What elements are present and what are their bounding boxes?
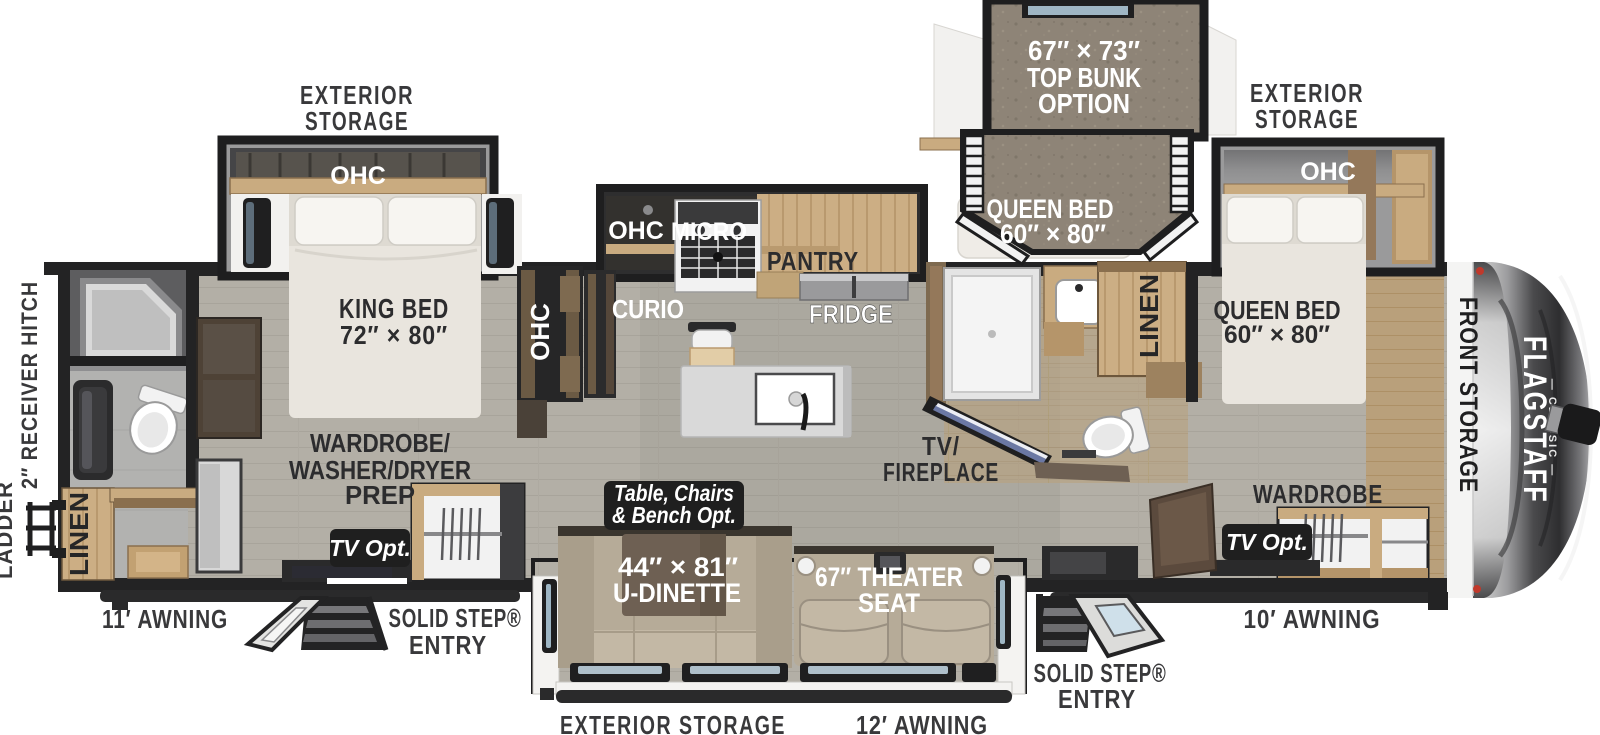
svg-text:OHC: OHC [1300,158,1356,186]
svg-text:WARDROBE/: WARDROBE/ [310,428,450,458]
svg-text:STORAGE: STORAGE [1255,104,1359,134]
svg-text:LINEN: LINEN [1134,274,1164,358]
svg-text:CURIO: CURIO [612,294,684,324]
svg-text:OHC: OHC [608,217,664,245]
svg-text:10′ AWNING: 10′ AWNING [1244,604,1381,634]
svg-text:60″ × 80″: 60″ × 80″ [1224,321,1330,349]
svg-text:FRIDGE: FRIDGE [809,299,893,329]
svg-text:OHC: OHC [525,303,555,361]
svg-text:MICRO: MICRO [671,218,747,246]
svg-text:OHC: OHC [330,162,386,190]
svg-text:2″ RECEIVER HITCH: 2″ RECEIVER HITCH [17,281,42,489]
svg-text:TV Opt.: TV Opt. [1226,529,1308,555]
svg-text:TV Opt.: TV Opt. [329,535,411,561]
svg-text:& Bench Opt.: & Bench Opt. [612,502,736,528]
svg-text:LADDER: LADDER [0,481,17,579]
svg-text:STORAGE: STORAGE [305,106,409,136]
svg-text:11′ AWNING: 11′ AWNING [102,604,228,634]
svg-text:LINEN: LINEN [64,492,94,576]
svg-text:ENTRY: ENTRY [1058,684,1136,714]
svg-text:U-DINETTE: U-DINETTE [613,578,741,608]
svg-text:ENTRY: ENTRY [409,630,487,660]
svg-text:SEAT: SEAT [858,588,920,618]
svg-text:PREP: PREP [345,480,415,510]
svg-text:EXTERIOR STORAGE: EXTERIOR STORAGE [560,710,786,735]
svg-text:12′ AWNING: 12′ AWNING [856,710,988,735]
svg-text:SOLID STEP®: SOLID STEP® [389,603,522,633]
svg-text:FRONT STORAGE: FRONT STORAGE [1454,297,1482,493]
svg-text:72″ × 80″: 72″ × 80″ [340,320,448,350]
svg-text:OPTION: OPTION [1038,88,1130,119]
svg-text:FIREPLACE: FIREPLACE [883,457,999,487]
svg-text:60″ × 80″: 60″ × 80″ [1000,219,1106,249]
svg-text:WARDROBE: WARDROBE [1253,479,1383,509]
